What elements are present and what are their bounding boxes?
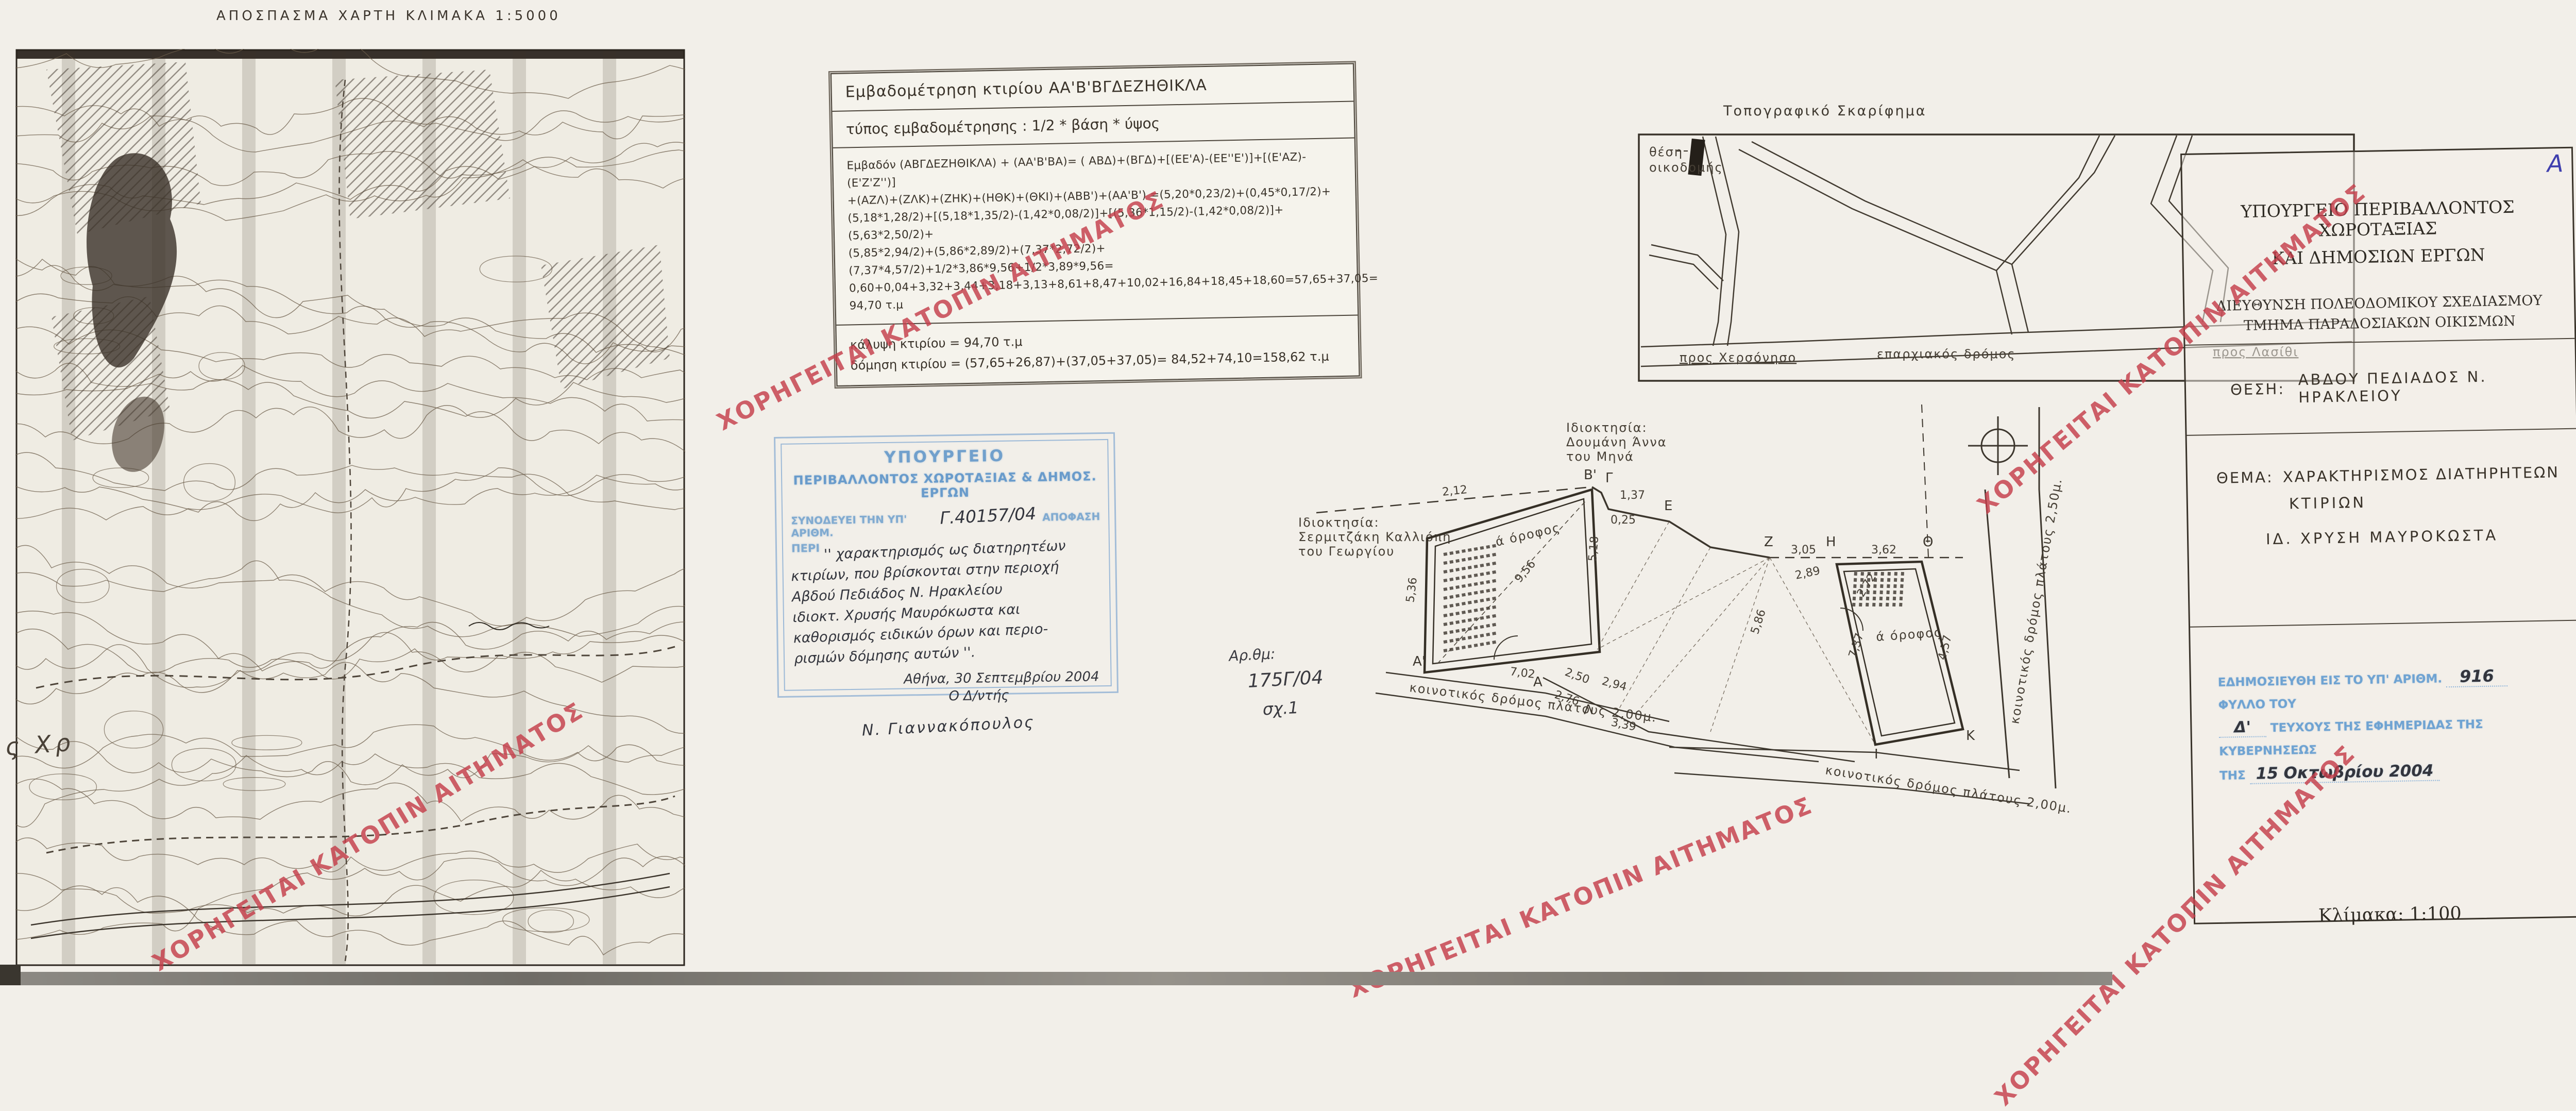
owner-top-line: Ιδιοκτησία:	[1566, 420, 1648, 435]
map-extract-figure	[15, 49, 685, 966]
location-label: ΘΕΣΗ:	[2230, 380, 2285, 398]
dim-5-18: 5,18	[1586, 536, 1601, 562]
stamp-subject-handwriting: '' χαρακτηρισμός ως διατηρητέων κτιρίων,…	[790, 534, 1103, 669]
dim-2-50: 2,50	[1563, 666, 1591, 686]
left-building-stairs	[1444, 545, 1498, 651]
scanned-architectural-document: { "map_section": { "title": "ΑΠΟΣΠΑΣΜΑ Χ…	[0, 0, 2576, 985]
stamp-accompanies-prefix: ΣΥΝΟΔΕΥΕΙ ΤΗΝ ΥΠ' ΑΡΙΘΜ.	[791, 513, 934, 540]
right-floor-label: ά όροφος	[1875, 625, 1942, 644]
ministry-name-line1: ΥΠΟΥΡΓΕΙΟ ΠΕΡΙΒΑΛΛΟΝΤΟΣ ΧΩΡΟΤΑΞΙΑΣ	[2182, 148, 2573, 243]
plan-left-building	[1425, 490, 1600, 672]
publication-prefix: ΕΔΗΜΟΣΙΕΥΘΗ ΕΙΣ ΤΟ ΥΠ' ΑΡΙΘΜ.	[2218, 672, 2443, 689]
point-a: Α	[1533, 675, 1543, 690]
title-block-publication-section: ΕΔΗΜΟΣΙΕΥΘΗ ΕΙΣ ΤΟ ΥΠ' ΑΡΙΘΜ. 916 ΦΥΛΛΟ …	[2190, 620, 2576, 955]
dim-0-25: 0,25	[1611, 514, 1636, 527]
map-margin-handwriting: ς Χρ	[4, 728, 75, 761]
point-h: Η	[1826, 534, 1836, 550]
publication-date-handwritten: 15 Οκτωβρίου 2004	[2249, 761, 2439, 784]
owner-top-line: Δουμάνη Άννα	[1566, 435, 1667, 449]
area-table-formula: Εμβαδόν (ΑΒΓΔΕΖΗΘΙΚΛΑ) + (ΑΑ'Β'ΒΑ)= ( ΑΒ…	[833, 139, 1358, 326]
approval-stamp-inner: ΥΠΟΥΡΓΕΙΟ ΠΕΡΙΒΑΛΛΟΝΤΟΣ ΧΩΡΟΤΑΞΙΑΣ & ΔΗΜ…	[781, 439, 1112, 691]
stamp-ministry-line1: ΥΠΟΥΡΓΕΙΟ	[790, 445, 1099, 468]
area-calculation-table: Εμβαδομέτρηση κτιρίου ΑΑ'Β'ΒΓΔΕΖΗΘΙΚΛΑ τ…	[831, 63, 1360, 386]
dim-2-89: 2,89	[1794, 564, 1821, 582]
dim-5-86: 5,86	[1749, 608, 1769, 636]
title-block-ministry-section: ΥΠΟΥΡΓΕΙΟ ΠΕΡΙΒΑΛΛΟΝΤΟΣ ΧΩΡΟΤΑΞΙΑΣ ΚΑΙ Δ…	[2182, 148, 2574, 345]
topo-map-drawing	[15, 49, 685, 966]
right-road-label: κοινοτικός δρόμος πλάτους 2,50μ.	[2007, 477, 2065, 725]
stamp-date-handwritten: Αθήνα, 30 Σεπτεμβρίου 2004	[793, 669, 1102, 688]
dim-5-36: 5,36	[1404, 577, 1420, 603]
subject-label: ΘΕΜΑ:	[2216, 468, 2274, 487]
scan-edge-bottom	[0, 972, 2112, 985]
point-th: Θ	[1923, 534, 1933, 550]
stamp-ministry-line2: ΠΕΡΙΒΑΛΛΟΝΤΟΣ ΧΩΡΟΤΑΞΙΑΣ & ΔΗΜΟΣ. ΕΡΓΩΝ	[790, 469, 1100, 502]
dim-2-94: 2,94	[1600, 675, 1628, 694]
point-a-prime: Α'	[1413, 654, 1426, 669]
area-table-totals: κάλυψη κτιρίου = 94,70 τ.μ δόμηση κτιρίο…	[836, 315, 1359, 385]
publication-issue-handwritten: Δ'	[2218, 718, 2266, 738]
point-b-prime: Β'	[1584, 467, 1597, 483]
directorate-name: ΔΙΕΥΘΥΝΣΗ ΠΟΛΕΟΔΟΜΙΚΟΥ ΣΧΕΔΙΑΣΜΟΥ	[2184, 292, 2574, 315]
owner-left-line: Ιδιοκτησία:	[1298, 515, 1380, 530]
point-z: Ζ	[1764, 534, 1773, 550]
point-e: Ε	[1664, 498, 1672, 514]
dim-7-02: 7,02	[1509, 665, 1536, 681]
dim-3-62: 3,62	[1871, 544, 1896, 557]
stamp-signer-title: Ο Δ/ντής	[793, 686, 1103, 706]
location-value: ΑΒΔΟΥ ΠΕΔΙΑΔΟΣ Ν. ΗΡΑΚΛΕΙΟΥ	[2298, 366, 2575, 406]
dim-1-37: 1,37	[1620, 489, 1645, 502]
right-building-door-arc	[1840, 608, 1863, 631]
point-g: Γ	[1605, 470, 1613, 486]
owner-left-line: του Γεωργίου	[1298, 544, 1395, 559]
plan-right-road	[1985, 407, 2056, 788]
point-i: Ι	[1874, 747, 1878, 762]
plan-owner-top-label: Ιδιοκτησία: Δουμάνη Άννα του Μηνά	[1566, 420, 1667, 464]
bottom-right-road-label: κοινοτικός δρόμος πλάτους 2,00μ.	[1824, 763, 2073, 816]
dim-3-05: 3,05	[1791, 544, 1816, 557]
title-block-location-section: ΘΕΣΗ: ΑΒΔΟΥ ΠΕΔΙΑΔΟΣ Ν. ΗΡΑΚΛΕΙΟΥ	[2185, 338, 2576, 435]
owner-value: ΙΔ. ΧΡΥΣΗ ΜΑΥΡΟΚΩΣΤΑ	[2189, 525, 2576, 549]
publication-number-handwritten: 916	[2446, 666, 2507, 687]
publication-date-prefix: ΤΗΣ	[2219, 769, 2246, 783]
scan-edge-corner	[0, 965, 21, 985]
sketch-label-to-chersoniso: προς Χερσόνησο	[1680, 350, 1797, 365]
title-block: Α ΥΠΟΥΡΓΕΙΟ ΠΕΡΙΒΑΛΛΟΝΤΟΣ ΧΩΡΟΤΑΞΙΑΣ ΚΑΙ…	[2180, 147, 2576, 924]
point-k: Κ	[1966, 728, 1975, 744]
point-l: Λ	[1584, 702, 1593, 718]
title-block-subject-section: ΘΕΜΑ: ΧΑΡΑΚΤΗΡΙΣΜΟΣ ΔΙΑΤΗΡΗΤΕΩΝ ΚΤΙΡΙΩΝ …	[2187, 428, 2576, 627]
north-compass-icon	[1968, 416, 2028, 475]
sketch-building-label-2: οικοδομής	[1649, 160, 1723, 175]
department-name: ΤΜΗΜΑ ΠΑΡΑΔΟΣΙΑΚΩΝ ΟΙΚΙΣΜΩΝ	[2185, 312, 2574, 335]
sketch-building-label-1: θέση	[1649, 145, 1683, 159]
subject-value-line2: ΚΤΙΡΙΩΝ	[2188, 490, 2576, 514]
dim-9-56: 9,56	[1512, 558, 1538, 585]
dim-2-12: 2,12	[1442, 483, 1468, 499]
map-extract-title: ΑΠΟΣΠΑΣΜΑ ΧΑΡΤΗ ΚΛΙΜΑΚΑ 1:5000	[216, 8, 561, 24]
ministry-approval-stamp: ΥΠΟΥΡΓΕΙΟ ΠΕΡΙΒΑΛΛΟΝΤΟΣ ΧΩΡΟΤΑΞΙΑΣ & ΔΗΜ…	[774, 432, 1118, 698]
left-building-diagonal	[1437, 501, 1586, 664]
owner-top-line: του Μηνά	[1566, 449, 1634, 464]
decision-number-handwritten: Γ.40157/04	[939, 503, 1037, 528]
publication-middle: ΦΥΛΛΟ ΤΟΥ	[2218, 697, 2296, 712]
stamp-accompanies-suffix: ΑΠΟΦΑΣΗ	[1042, 510, 1100, 524]
ministry-name-line2: ΚΑΙ ΔΗΜΟΣΙΩΝ ΕΡΓΩΝ	[2183, 243, 2573, 270]
publication-stamp: ΕΔΗΜΟΣΙΕΥΘΗ ΕΙΣ ΤΟ ΥΠ' ΑΡΙΘΜ. 916 ΦΥΛΛΟ …	[2217, 664, 2539, 787]
site-plan-figure: Ιδιοκτησία: Δουμάνη Άννα του Μηνά Ιδιοκτ…	[1278, 392, 2164, 819]
subject-value-line1: ΧΑΡΑΚΤΗΡΙΣΜΟΣ ΔΙΑΤΗΡΗΤΕΩΝ	[2282, 463, 2560, 485]
drawing-scale: Κλίμακα: 1:100	[2195, 901, 2576, 929]
map-top-scan-edge	[17, 50, 684, 59]
stamp-signature: Ν. Γιαννακόπουλος	[793, 710, 1103, 743]
sketch-label-main-road: επαρχιακός δρόμος	[1877, 347, 2015, 361]
